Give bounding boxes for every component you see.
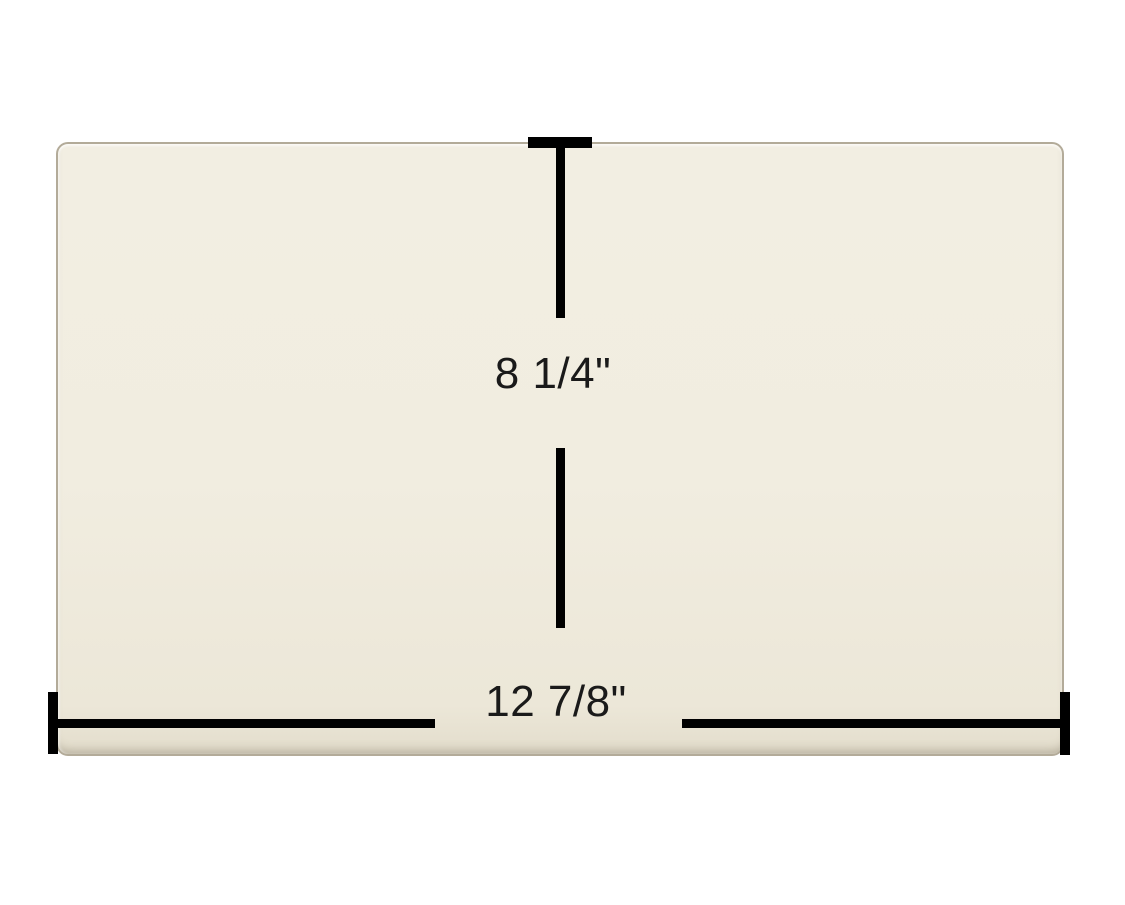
width-dimension-label: 12 7/8"	[456, 680, 656, 724]
width-dimension-right-cap	[1060, 692, 1070, 755]
height-dimension-label: 8 1/4"	[453, 352, 653, 396]
width-dimension-line-right	[682, 719, 1066, 728]
product-image: 8 1/4" 12 7/8"	[0, 0, 1125, 905]
height-dimension-line-upper	[556, 147, 565, 318]
height-dimension-line-lower	[556, 448, 565, 628]
width-dimension-line-left	[52, 719, 435, 728]
